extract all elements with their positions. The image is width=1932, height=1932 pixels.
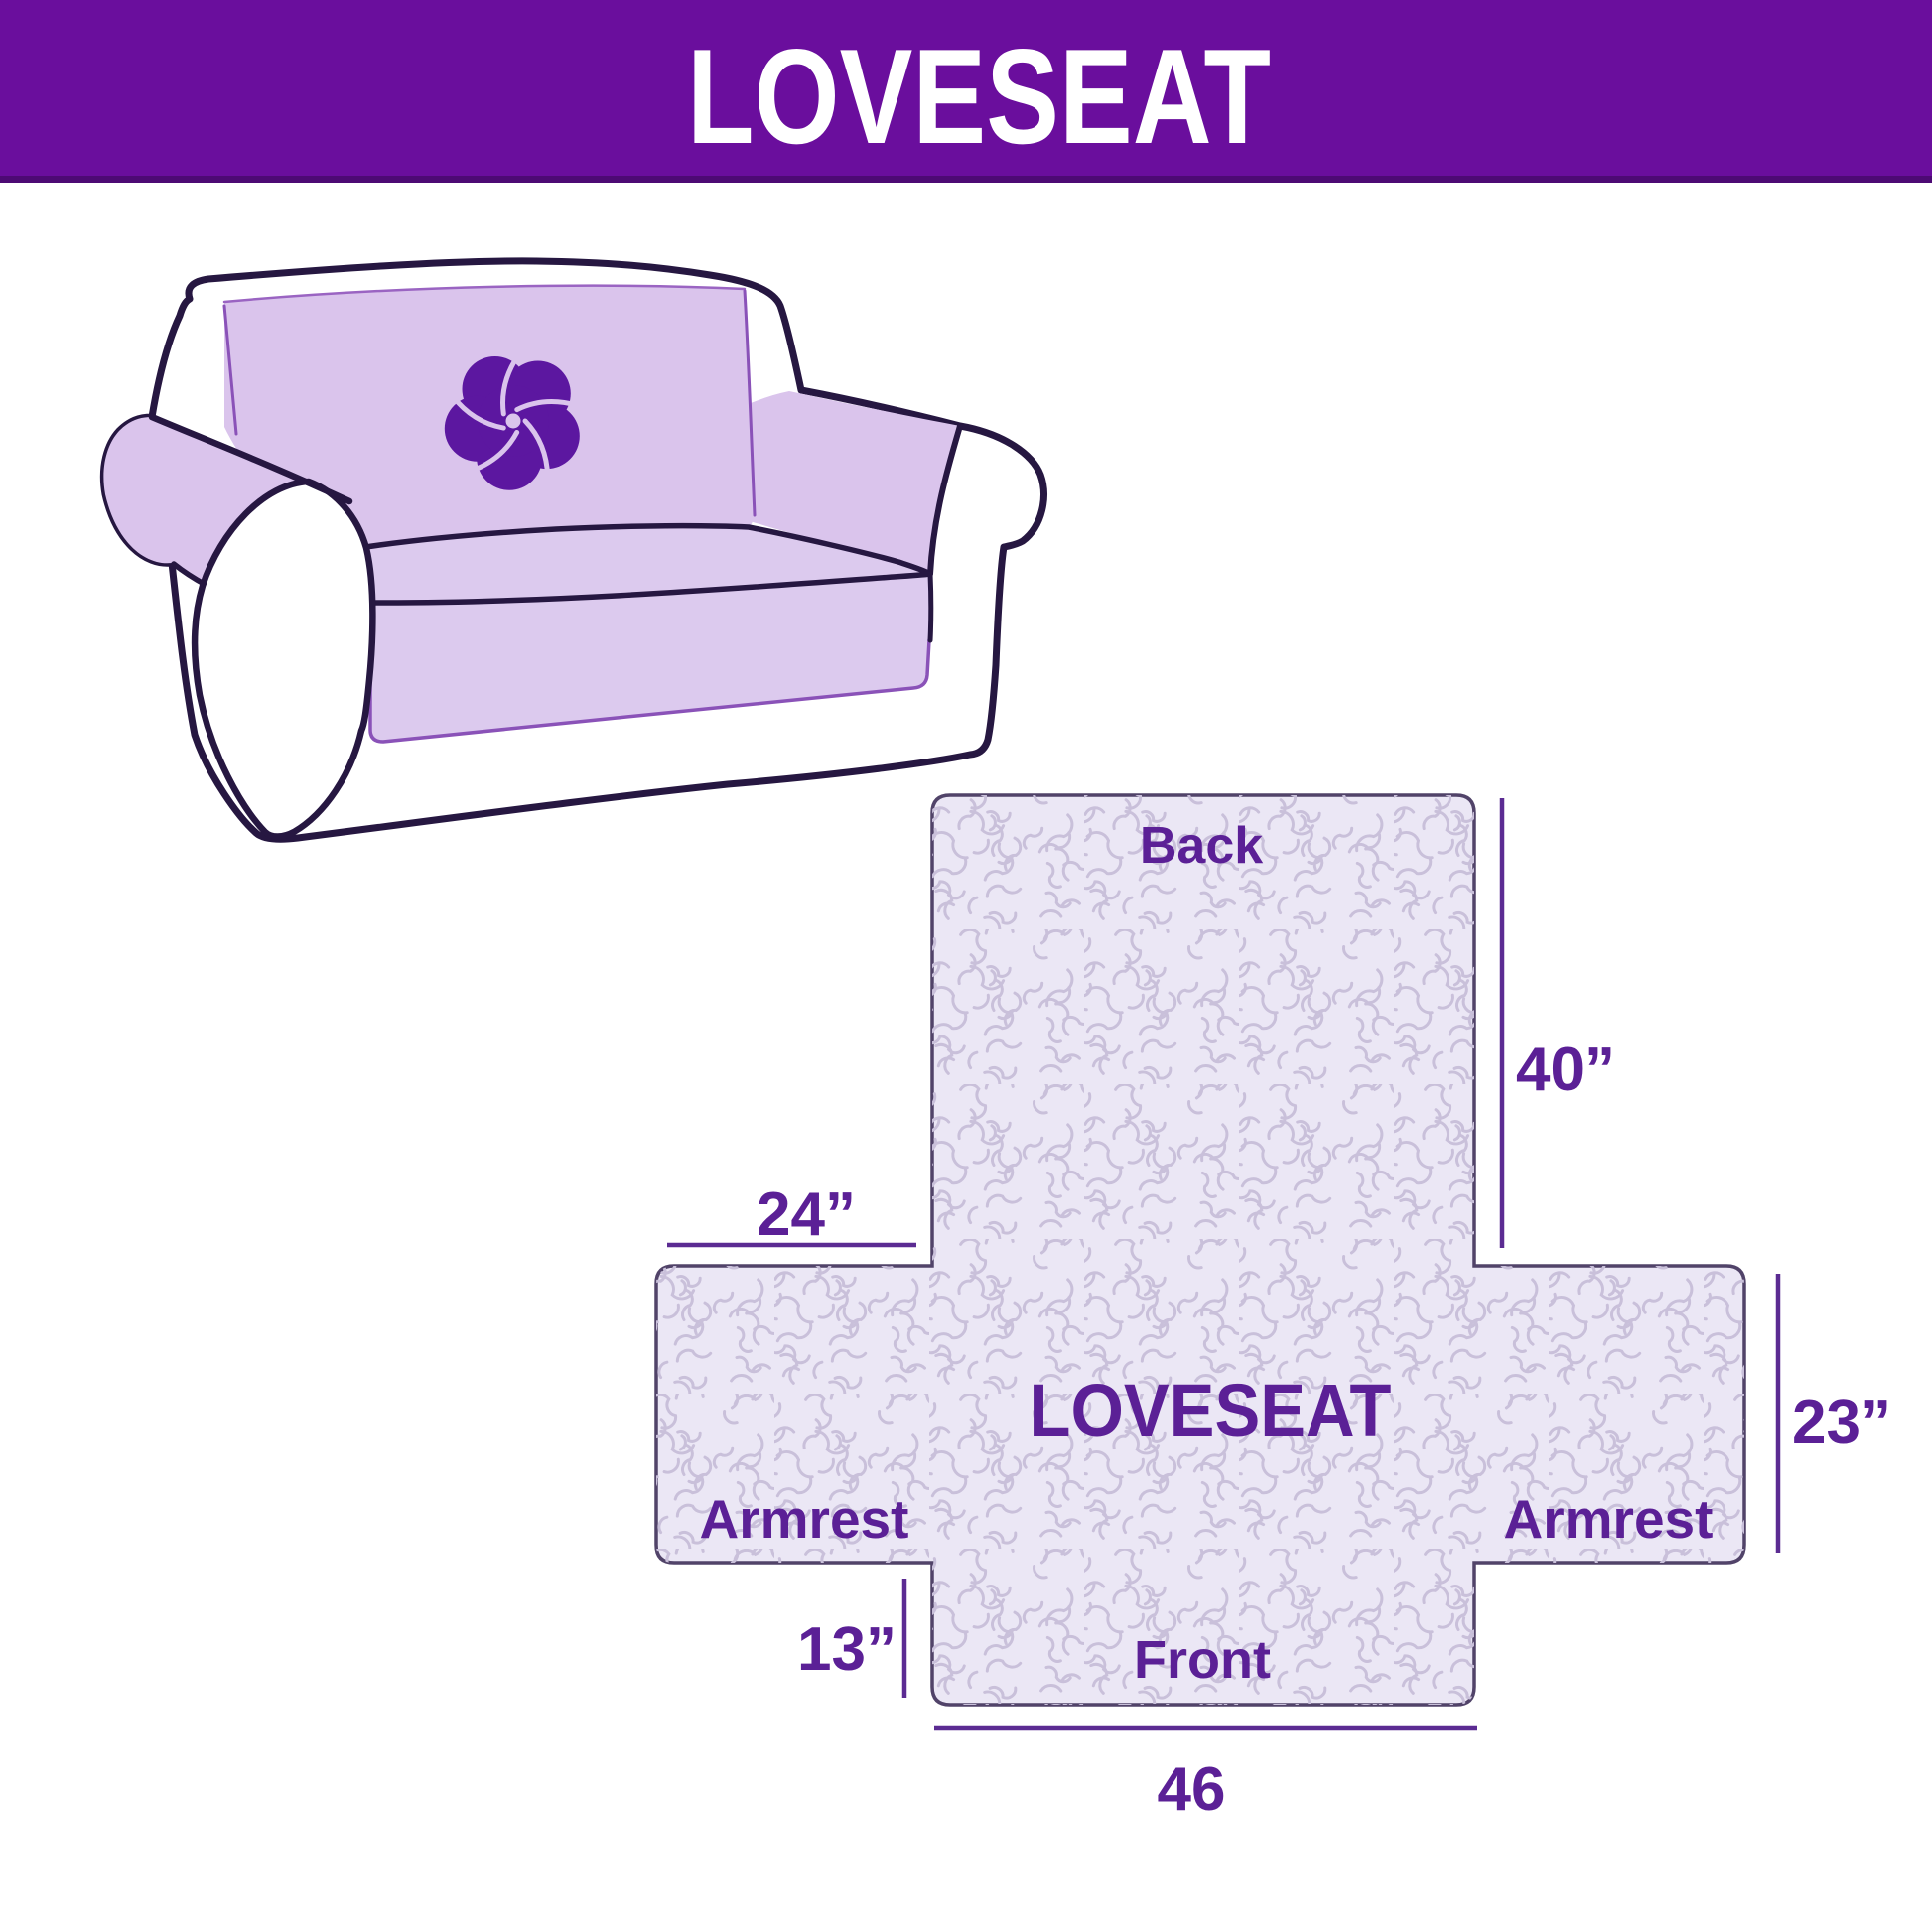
svg-text:24”: 24” xyxy=(757,1180,856,1249)
svg-text:13”: 13” xyxy=(797,1615,897,1684)
svg-text:LOVESEAT: LOVESEAT xyxy=(1030,1369,1392,1451)
svg-text:40”: 40” xyxy=(1516,1035,1615,1104)
svg-text:LOVESEAT: LOVESEAT xyxy=(687,21,1271,172)
svg-text:23”: 23” xyxy=(1792,1388,1891,1456)
svg-text:Armrest: Armrest xyxy=(1504,1488,1714,1550)
svg-text:46: 46 xyxy=(1158,1755,1226,1824)
svg-text:Front: Front xyxy=(1134,1630,1271,1690)
svg-text:Armrest: Armrest xyxy=(700,1488,909,1550)
svg-text:Back: Back xyxy=(1140,817,1263,875)
